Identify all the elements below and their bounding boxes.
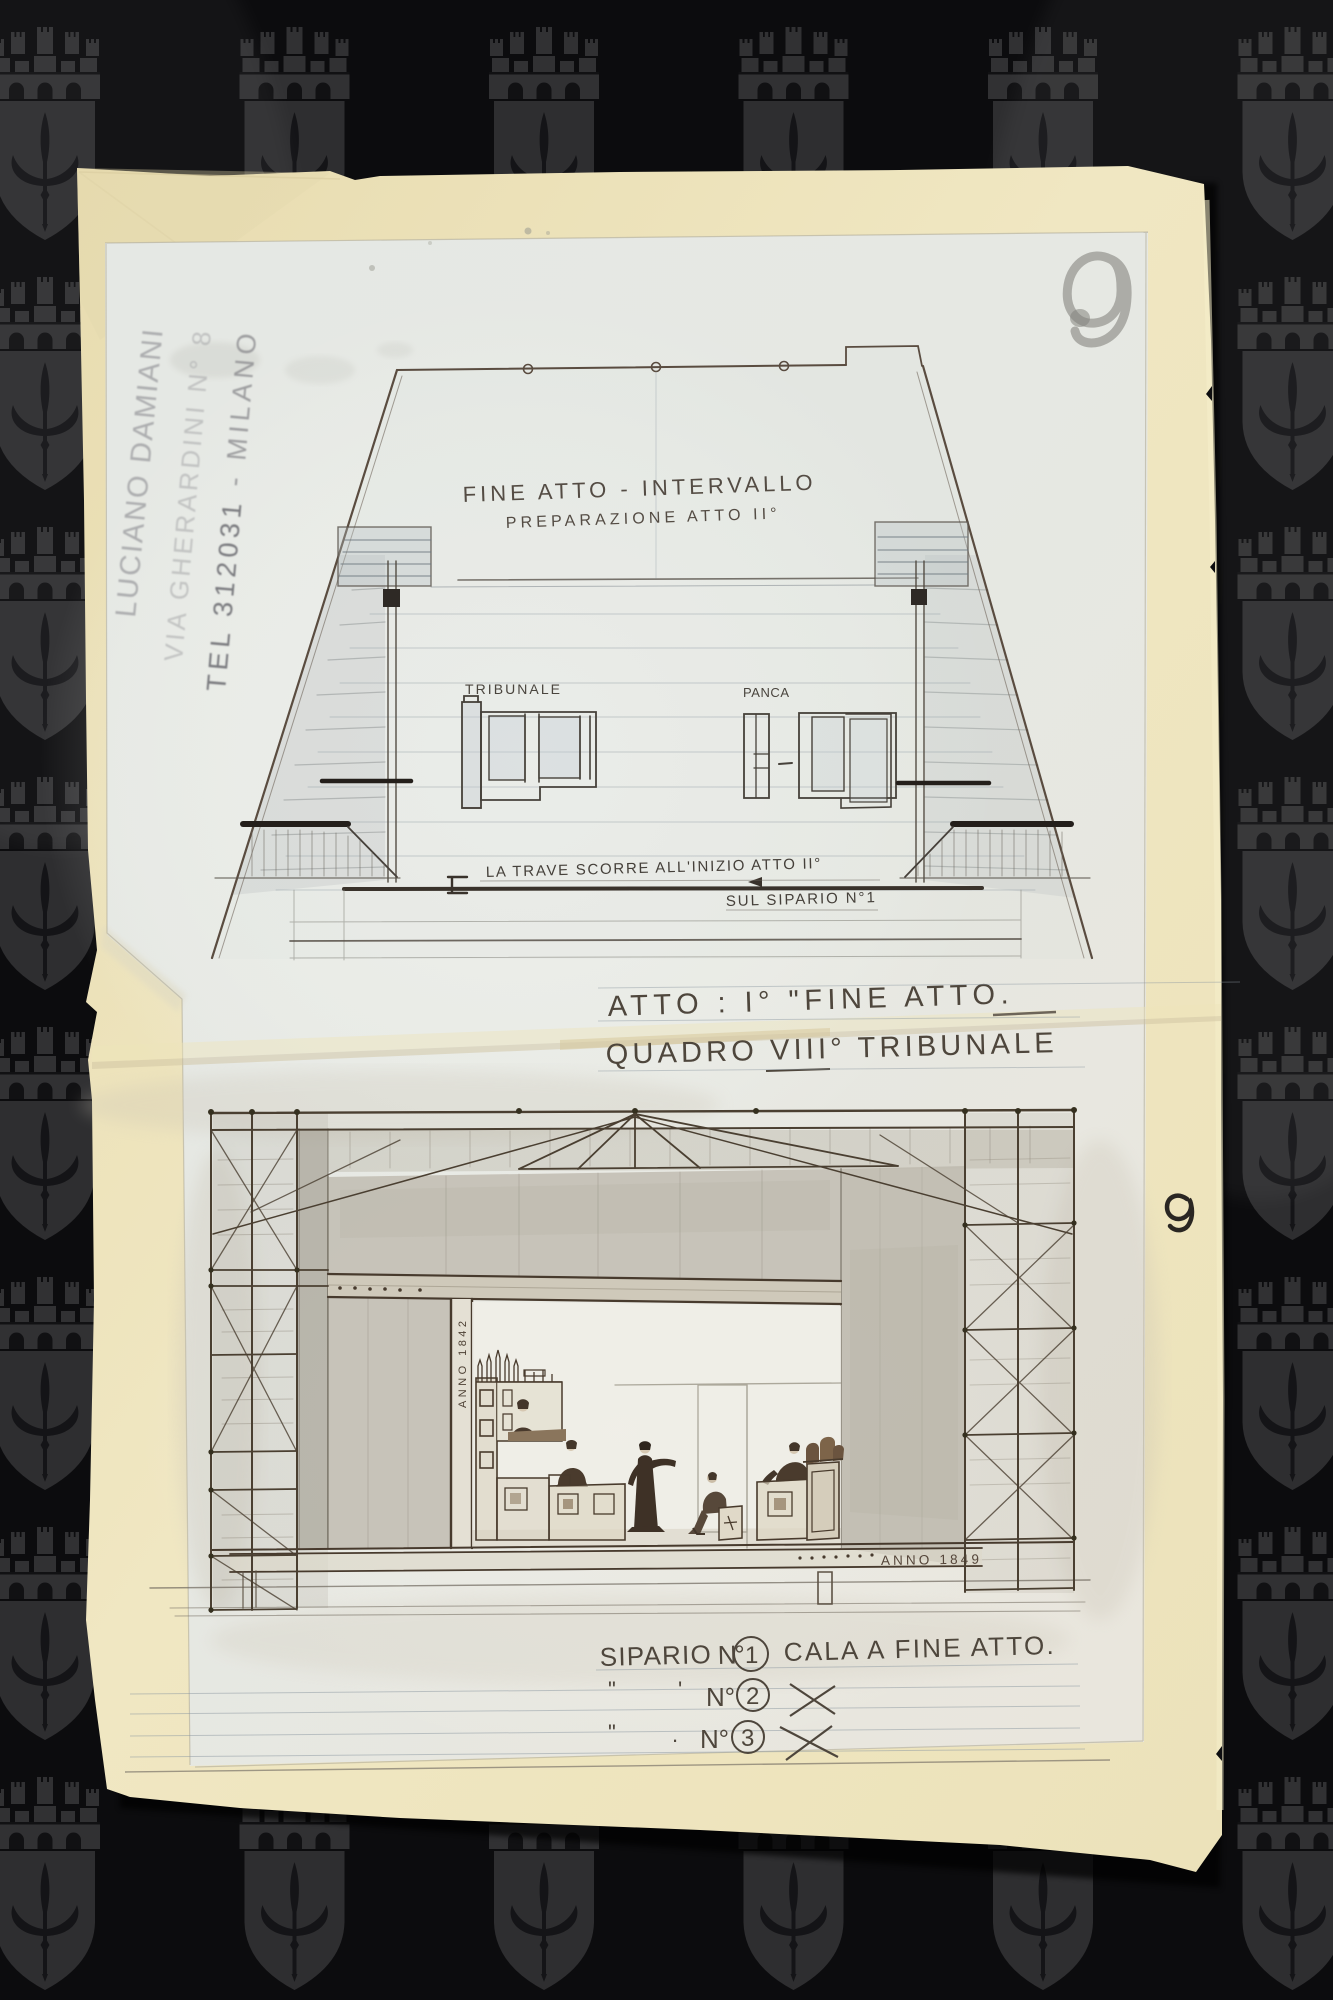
svg-text:.: .: [672, 1722, 678, 1747]
svg-text:SIPARIO: SIPARIO: [599, 1639, 712, 1672]
svg-text:2: 2: [746, 1683, 759, 1710]
svg-text:": ": [608, 1720, 616, 1745]
svg-text:ANNO 1849: ANNO 1849: [881, 1552, 981, 1568]
svg-text:1: 1: [745, 1642, 758, 1669]
svg-text:TRIBUNALE: TRIBUNALE: [465, 681, 561, 697]
svg-text:': ': [678, 1677, 682, 1702]
svg-text:": ": [608, 1677, 616, 1702]
svg-text:PANCA: PANCA: [743, 685, 790, 700]
svg-text:N°: N°: [706, 1682, 736, 1712]
svg-text:N°: N°: [717, 1639, 746, 1670]
svg-text:N°: N°: [700, 1724, 730, 1754]
svg-text:3: 3: [741, 1725, 754, 1752]
